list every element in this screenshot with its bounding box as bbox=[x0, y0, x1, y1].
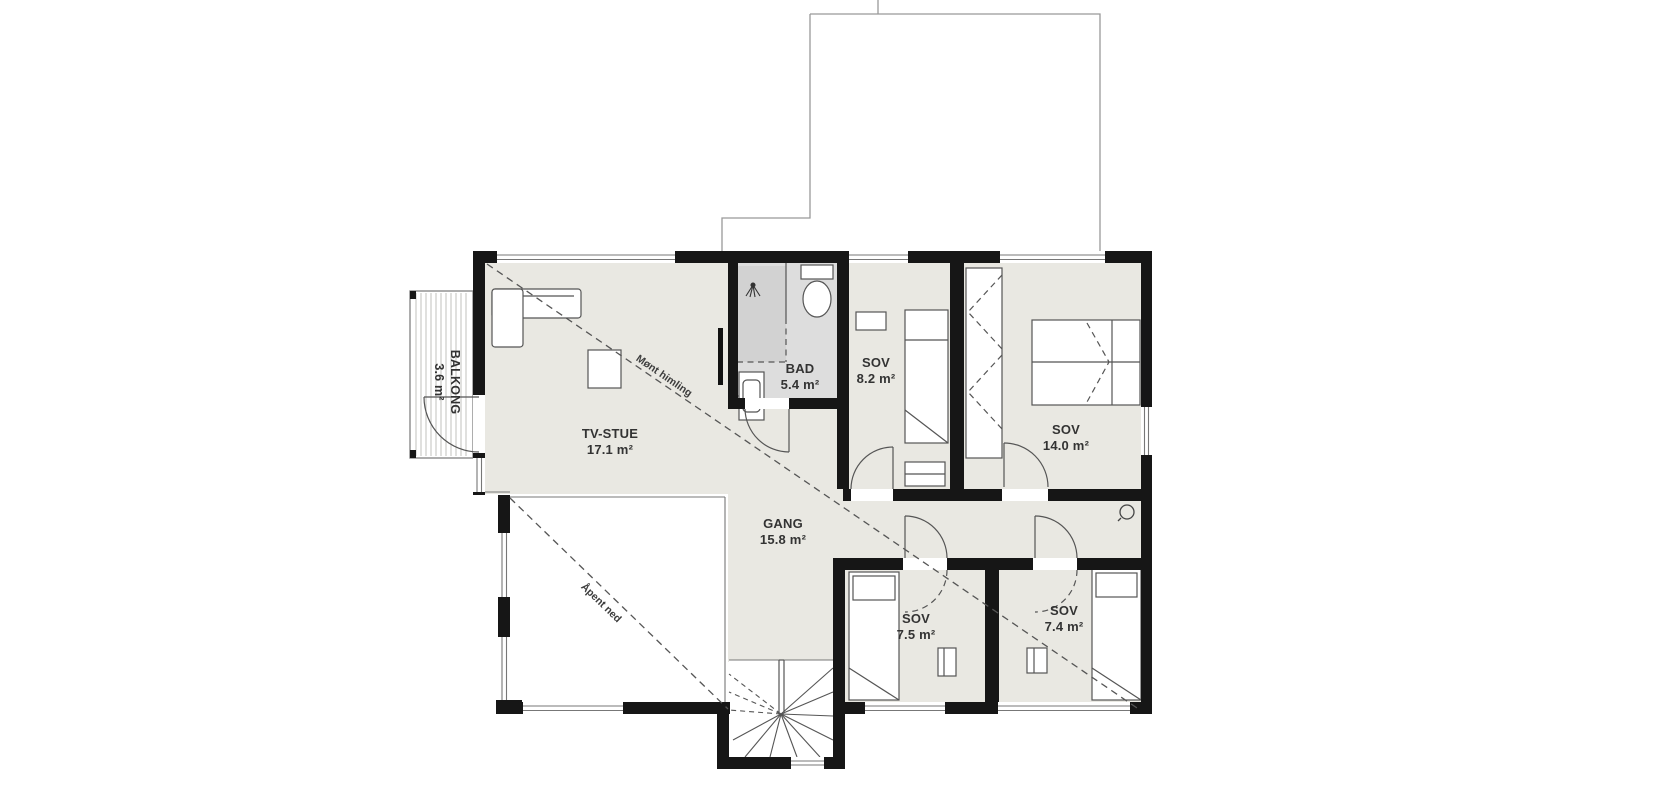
room-label-gang: GANG 15.8 m² bbox=[733, 516, 833, 548]
toilet-icon bbox=[801, 265, 833, 317]
window-icon bbox=[1000, 251, 1105, 263]
window-icon bbox=[498, 637, 510, 700]
room-label-balkong: BALKONG 3.6 m² bbox=[431, 322, 463, 442]
tv-icon bbox=[718, 328, 723, 385]
floor-plan-canvas bbox=[0, 0, 1670, 800]
room-label-sov-75: SOV 7.5 m² bbox=[866, 611, 966, 643]
staircase-icon bbox=[729, 660, 833, 757]
room-area: 7.4 m² bbox=[1014, 619, 1114, 635]
room-name: SOV bbox=[826, 355, 926, 371]
floor-plan: BALKONG 3.6 m² TV-STUE 17.1 m² BAD 5.4 m… bbox=[0, 0, 1670, 800]
room-area: 14.0 m² bbox=[1016, 438, 1116, 454]
wardrobe-icon bbox=[966, 268, 1002, 458]
room-name: SOV bbox=[1016, 422, 1116, 438]
room-name: SOV bbox=[866, 611, 966, 627]
room-label-sov-14: SOV 14.0 m² bbox=[1016, 422, 1116, 454]
room-label-tv-stue: TV-STUE 17.1 m² bbox=[550, 426, 670, 458]
desk-icon bbox=[938, 648, 956, 676]
nightstand-icon bbox=[856, 312, 886, 330]
window-icon bbox=[865, 702, 945, 714]
roof-outline bbox=[722, 0, 1100, 255]
room-label-sov-74: SOV 7.4 m² bbox=[1014, 603, 1114, 635]
room-area: 3.6 m² bbox=[431, 322, 447, 442]
coffee-table-icon bbox=[588, 350, 621, 388]
window-icon bbox=[473, 458, 485, 492]
room-name: BALKONG bbox=[447, 322, 463, 442]
room-label-sov-8: SOV 8.2 m² bbox=[826, 355, 926, 387]
room-area: 8.2 m² bbox=[826, 371, 926, 387]
window-icon bbox=[998, 702, 1130, 714]
open-below-line bbox=[510, 498, 728, 709]
vent-window-icon bbox=[791, 757, 824, 769]
window-icon bbox=[849, 251, 908, 263]
window-icon bbox=[497, 251, 675, 263]
room-area: 7.5 m² bbox=[866, 627, 966, 643]
double-bed-icon bbox=[1032, 320, 1140, 405]
nightstand-icon bbox=[905, 462, 945, 486]
room-name: TV-STUE bbox=[550, 426, 670, 442]
window-icon bbox=[523, 702, 623, 714]
window-icon bbox=[1141, 407, 1152, 455]
room-area: 17.1 m² bbox=[550, 442, 670, 458]
nightstand-icon bbox=[1027, 648, 1047, 673]
room-name: SOV bbox=[1014, 603, 1114, 619]
room-name: GANG bbox=[733, 516, 833, 532]
room-area: 15.8 m² bbox=[733, 532, 833, 548]
window-icon bbox=[498, 533, 510, 597]
